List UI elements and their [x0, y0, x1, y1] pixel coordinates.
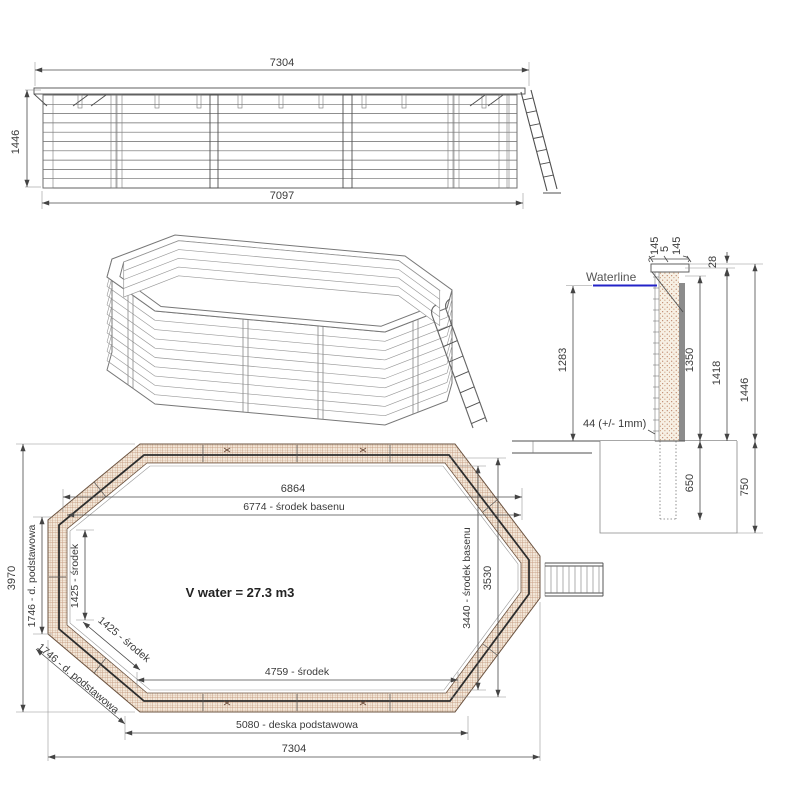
plan-dim-left-inner: 1425 - środek: [69, 543, 81, 608]
elevation-dim-bottom: 7097: [270, 190, 294, 202]
dim-buried: 650: [684, 474, 696, 492]
plan-dim-height: 3970: [6, 566, 18, 590]
elevation-dim-top: 7304: [270, 57, 294, 69]
plan-dim-top-inner: 6774 - środek basenu: [243, 501, 345, 513]
plank-thickness-note: 44 (+/- 1mm): [583, 418, 646, 430]
dim-wall-height: 1418: [711, 361, 723, 385]
dim-inner-depth: 1350: [684, 348, 696, 372]
plan-dim-right-inner: 3530: [482, 566, 494, 590]
plan-dim-top-outer: 6864: [281, 483, 305, 495]
plan-dim-right-center: 3440 - środek basenu: [461, 527, 473, 629]
plan-dim-bottom-board: 5080 - deska podstawowa: [236, 719, 358, 731]
plan-dim-bottom-outer: 7304: [282, 743, 306, 755]
dim-cap-offset: 28: [707, 256, 719, 268]
plan-dim-bottom-center: 4759 - środek: [265, 666, 330, 678]
waterline-label: Waterline: [586, 270, 637, 284]
dim-water-depth: 1283: [557, 348, 569, 372]
plan-volume-label: V water = 27.3 m3: [186, 585, 295, 600]
cap-dim-gap: 5: [659, 246, 671, 252]
dim-foundation: 750: [739, 478, 751, 496]
cap-dim-right: 145: [671, 237, 683, 255]
elevation-dim-left: 1446: [10, 130, 22, 154]
plan-dim-left-board: 1746 - d. podstawowa: [26, 524, 38, 627]
dim-total-height: 1446: [739, 378, 751, 402]
wall-core: [659, 272, 679, 441]
pool-technical-drawing: 7304 1446 7097: [0, 0, 794, 794]
pool-technical-drawing-page: 7304 1446 7097: [0, 0, 794, 794]
